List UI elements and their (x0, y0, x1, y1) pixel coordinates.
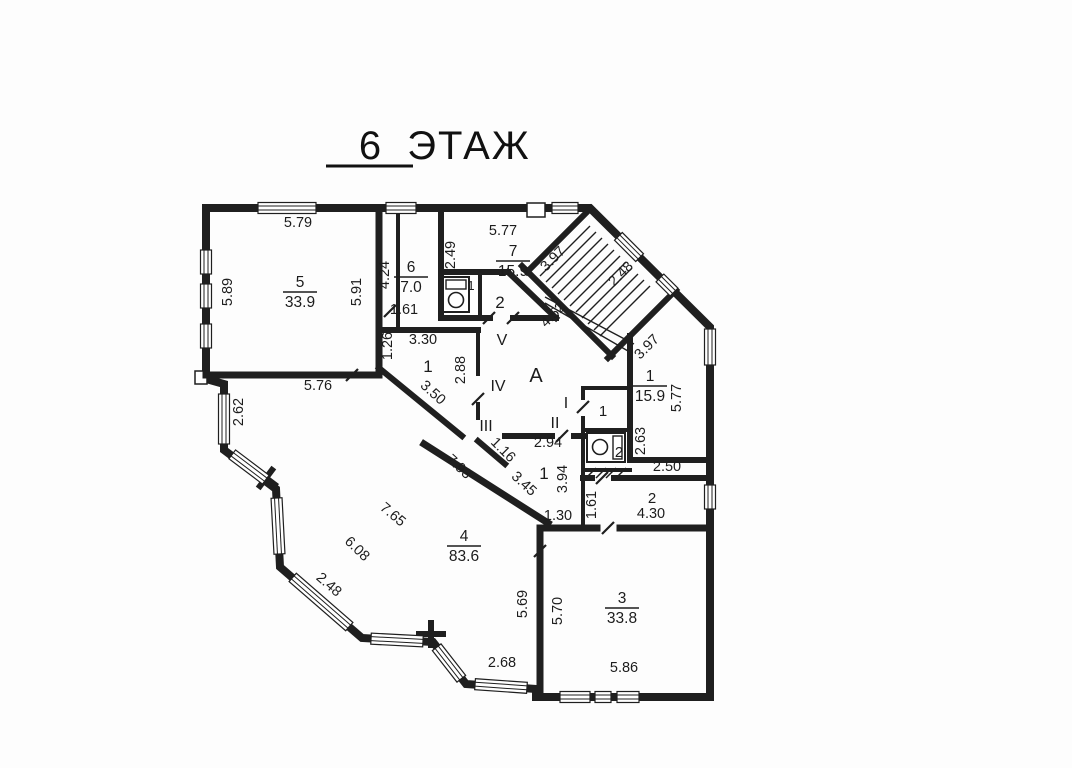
dimension-label: 2.49 (443, 241, 459, 269)
window-frame (475, 679, 528, 694)
dimension-label: 5.70 (550, 597, 566, 625)
window-frame (258, 203, 316, 214)
window (229, 450, 269, 484)
lobby-1-label: 1 (599, 403, 607, 420)
window (219, 394, 230, 444)
window (552, 203, 578, 214)
dimension-label: 3.97 (632, 332, 663, 363)
window-frame (219, 394, 230, 444)
window-frame (432, 644, 465, 682)
window-frame (617, 692, 639, 703)
room-4-number: 4 (460, 528, 469, 545)
dimension-label: 7.65 (377, 500, 409, 530)
dimension-label: 1.26 (380, 332, 396, 360)
wc-top-room-2-label: 2 (495, 293, 504, 312)
dimension-label: 2.63 (633, 427, 649, 455)
dimension-label: 3.45 (508, 469, 540, 500)
window (371, 633, 424, 647)
dimension-label: 4.30 (637, 506, 665, 522)
wc2-2-label: 2 (615, 444, 623, 461)
dimension-label: 4.24 (377, 261, 393, 289)
dimension-label: 2.62 (231, 398, 247, 426)
dimension-label: 1.61 (390, 302, 418, 318)
room-2-right-label: 2 (648, 490, 656, 507)
dimension-label: 5.76 (304, 378, 332, 394)
dimension-label: 6.08 (341, 534, 372, 565)
room-4-area: 83.6 (449, 548, 479, 565)
dimension-label: 2.88 (453, 356, 469, 384)
window (560, 692, 590, 703)
dimension-label: 1.30 (544, 508, 572, 524)
dimension-label: 5.77 (489, 223, 517, 239)
wall-notch (527, 203, 545, 217)
dimension-label: 5.91 (349, 278, 365, 306)
zone-I-label: I (564, 395, 568, 412)
wc-top-1-label: 1 (467, 278, 474, 293)
window-frame (552, 203, 578, 214)
window-frame (201, 250, 212, 274)
window-frame (705, 485, 716, 509)
floor-plan-page: 6 ЭТАЖ 533.967.0715.9115.9483.63 (0, 0, 1072, 768)
window (201, 284, 212, 308)
window (271, 498, 285, 554)
dimension-label: 2.48 (606, 259, 637, 290)
window (386, 203, 416, 214)
hall-center-1-label: 1 (539, 464, 548, 483)
window (432, 644, 465, 682)
window (258, 203, 316, 214)
room-1-right-area: 15.9 (635, 388, 665, 405)
zone-III-label: III (479, 418, 492, 435)
floor-word: ЭТАЖ (407, 124, 530, 168)
room-7-area: 15.9 (498, 263, 528, 280)
dimension-label: 5.89 (220, 278, 236, 306)
dimension-label: 3.94 (555, 465, 571, 493)
dimension-label: 1.61 (584, 491, 600, 519)
window-frame (271, 498, 285, 554)
drawing-title: 6 ЭТАЖ (326, 124, 531, 168)
room-6-number: 6 (407, 259, 416, 276)
window (705, 329, 716, 365)
zone-V-label: V (497, 332, 508, 349)
floor-plan-svg: 6 ЭТАЖ 533.967.0715.9115.9483.63 (0, 0, 1072, 768)
room-3-area: 33.8 (607, 610, 637, 627)
room-5-area: 33.9 (285, 294, 315, 311)
dimension-label: 3.97 (538, 244, 569, 275)
window (201, 324, 212, 348)
window-frame (201, 284, 212, 308)
dimension-label: 2.50 (653, 459, 681, 475)
room-5-number: 5 (296, 274, 305, 291)
window (705, 485, 716, 509)
room-1-right-number: 1 (646, 368, 655, 385)
window-frame (386, 203, 416, 214)
zone-II-label: II (551, 415, 560, 432)
room-3-number: 3 (618, 590, 627, 607)
zone-A-label: А (529, 365, 543, 387)
window (617, 692, 639, 703)
window-frame (560, 692, 590, 703)
dimension-label: 5.86 (610, 660, 638, 676)
room-7-number: 7 (509, 243, 518, 260)
dimension-label: 2.94 (534, 435, 562, 451)
dimension-label: 5.77 (669, 384, 685, 412)
window-frame (371, 633, 424, 647)
window-frame (595, 692, 611, 703)
floor-number: 6 (359, 124, 383, 168)
dimension-label: 3.30 (409, 332, 437, 348)
dimension-label: 5.69 (515, 590, 531, 618)
window (595, 692, 611, 703)
window-frame (229, 450, 269, 484)
toilet-fixture-top (443, 277, 469, 312)
dimension-label: 1.16 (487, 435, 518, 466)
dimension-label: 2.68 (488, 655, 516, 671)
room-6-area: 7.0 (400, 279, 422, 296)
window (475, 679, 528, 694)
window (201, 250, 212, 274)
hall-top-1-label: 1 (423, 357, 432, 376)
zone-IV-label: IV (490, 378, 505, 395)
dimension-label: 5.79 (284, 215, 312, 231)
window-frame (705, 329, 716, 365)
window-frame (201, 324, 212, 348)
